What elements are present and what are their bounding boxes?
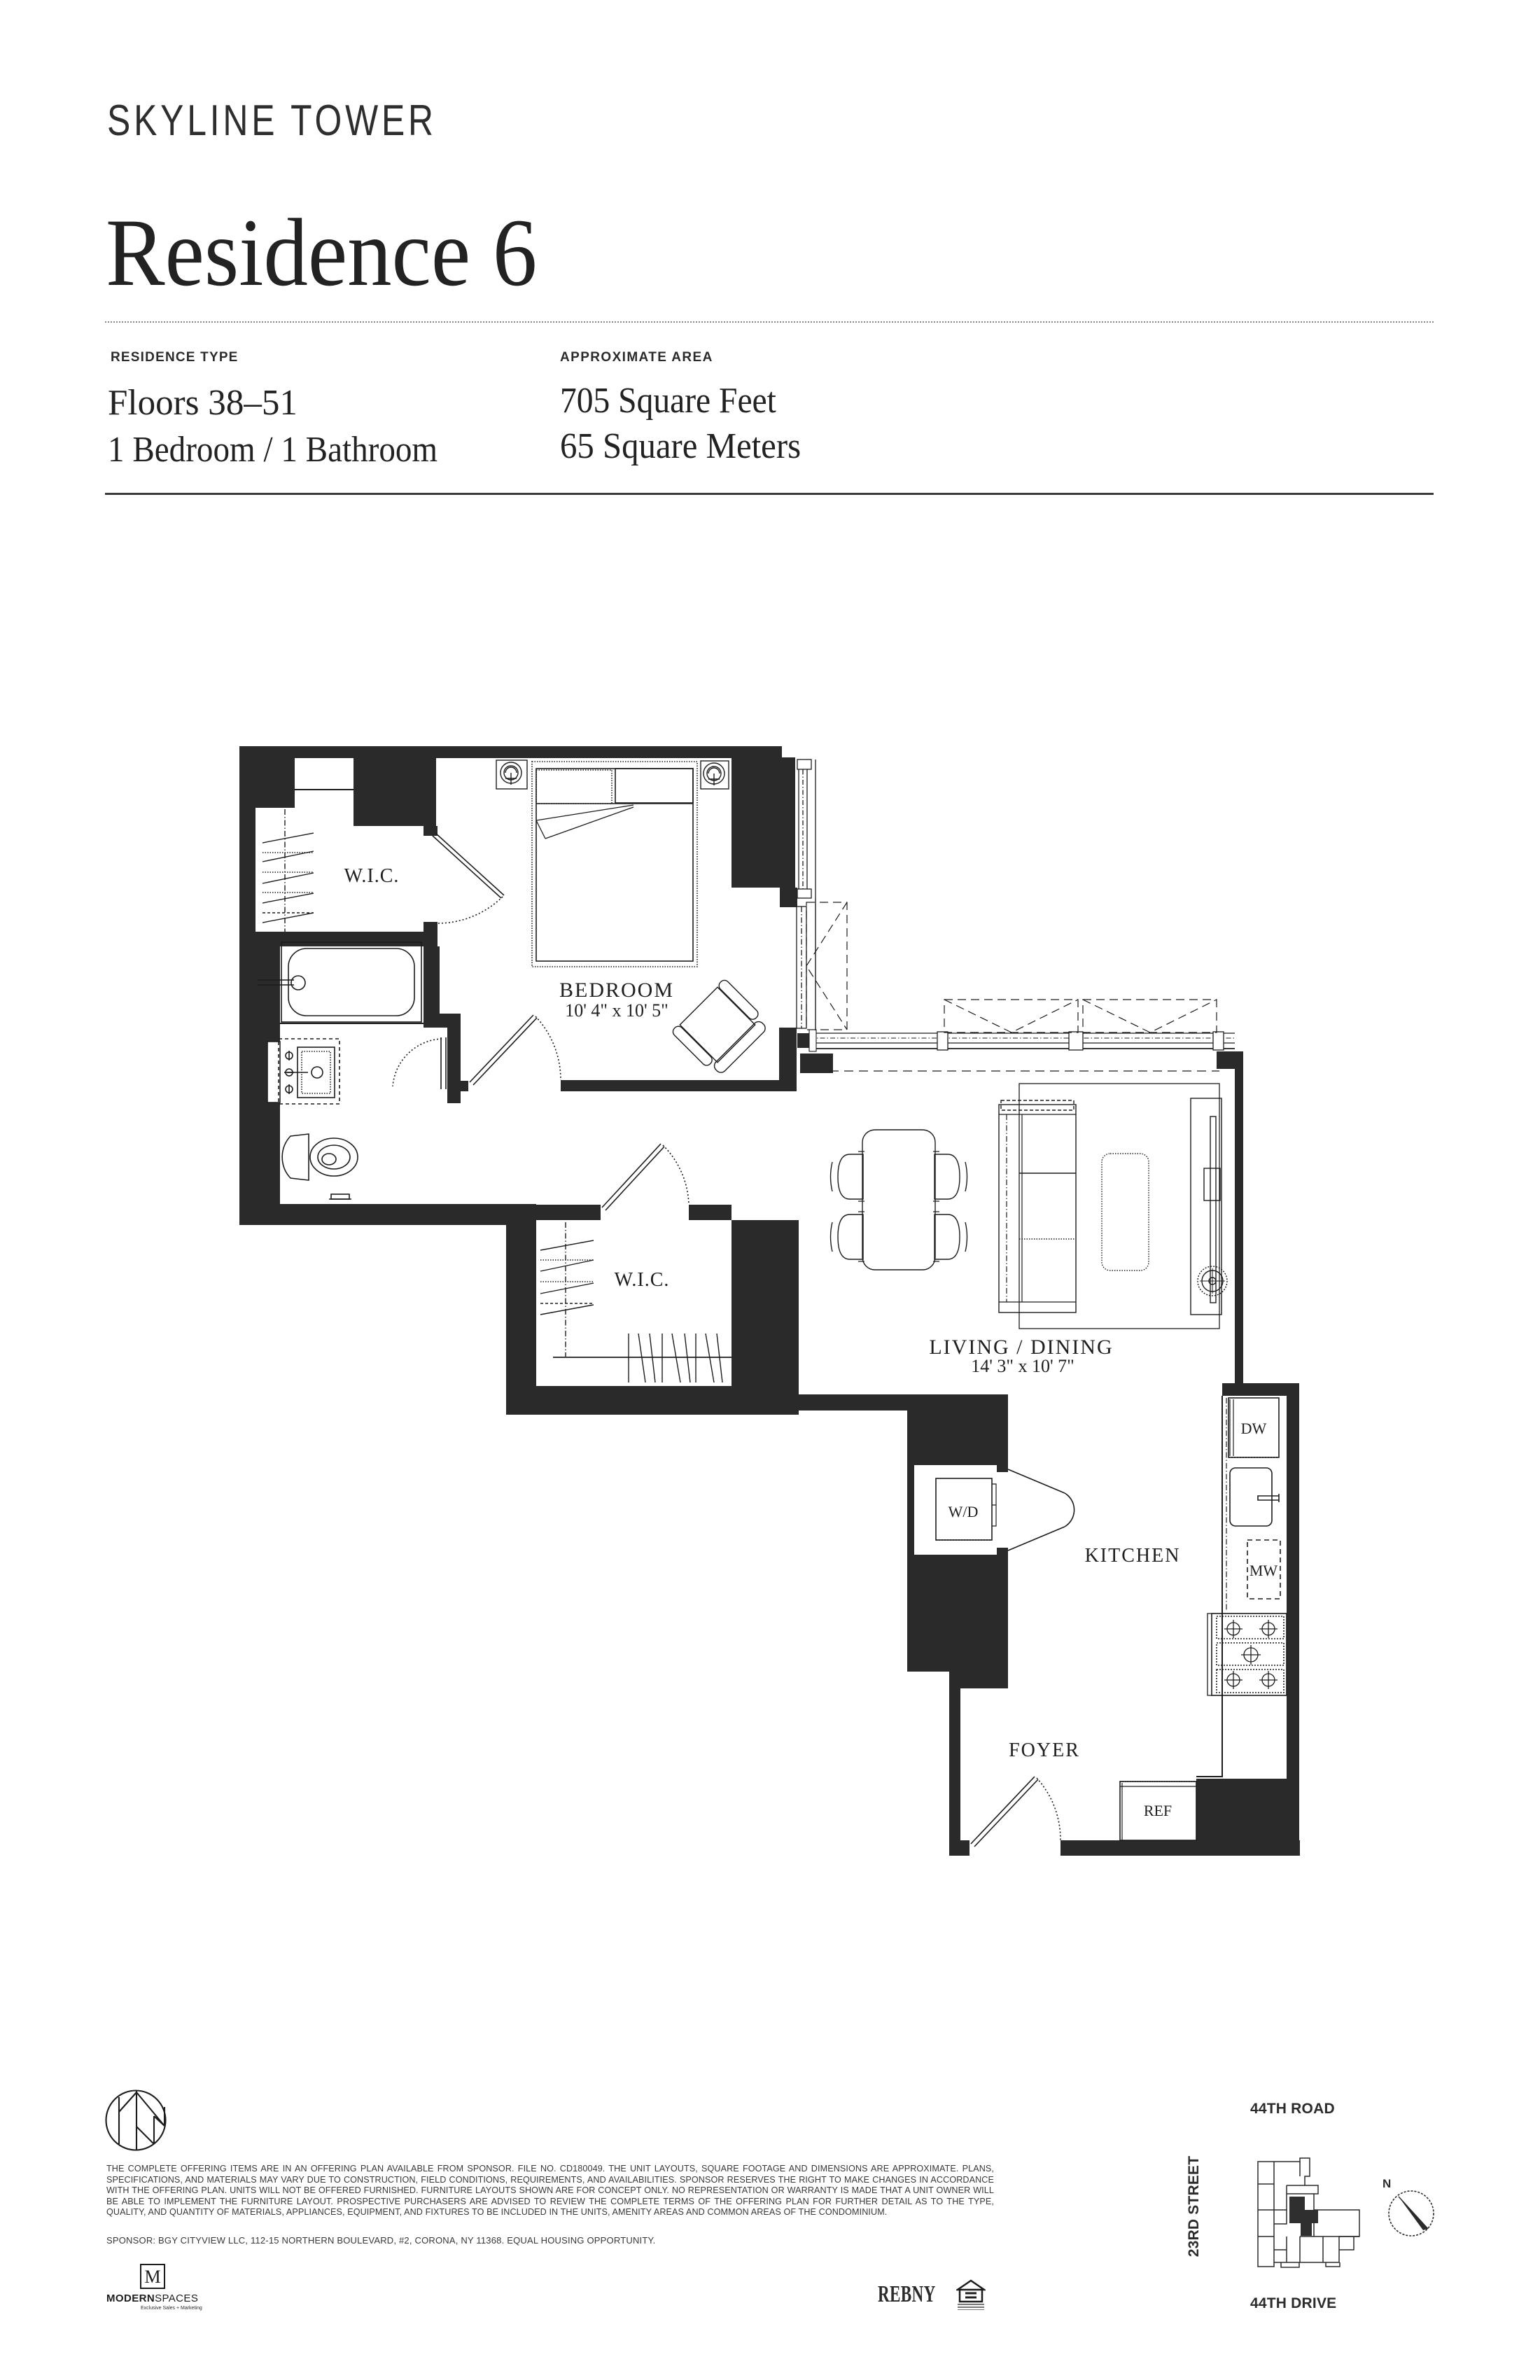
svg-text:M: M	[144, 2267, 160, 2287]
svg-text:MW: MW	[1249, 1562, 1278, 1579]
svg-text:BEDROOM: BEDROOM	[559, 979, 674, 1002]
svg-text:14' 3" x 10' 7": 14' 3" x 10' 7"	[971, 1356, 1074, 1376]
svg-text:W/D: W/D	[948, 1503, 979, 1520]
svg-text:W.I.C.: W.I.C.	[344, 865, 400, 887]
svg-text:Exclusive Sales + Marketing: Exclusive Sales + Marketing	[141, 2306, 202, 2311]
svg-text:W.I.C.: W.I.C.	[615, 1269, 670, 1291]
svg-text:REF: REF	[1144, 1802, 1172, 1819]
svg-text:DW: DW	[1241, 1420, 1267, 1437]
svg-text:FOYER: FOYER	[1009, 1739, 1080, 1761]
svg-text:MODERNSPACES: MODERNSPACES	[106, 2292, 198, 2304]
svg-text:10' 4" x 10' 5": 10' 4" x 10' 5"	[565, 1000, 668, 1021]
svg-text:KITCHEN: KITCHEN	[1085, 1545, 1181, 1567]
